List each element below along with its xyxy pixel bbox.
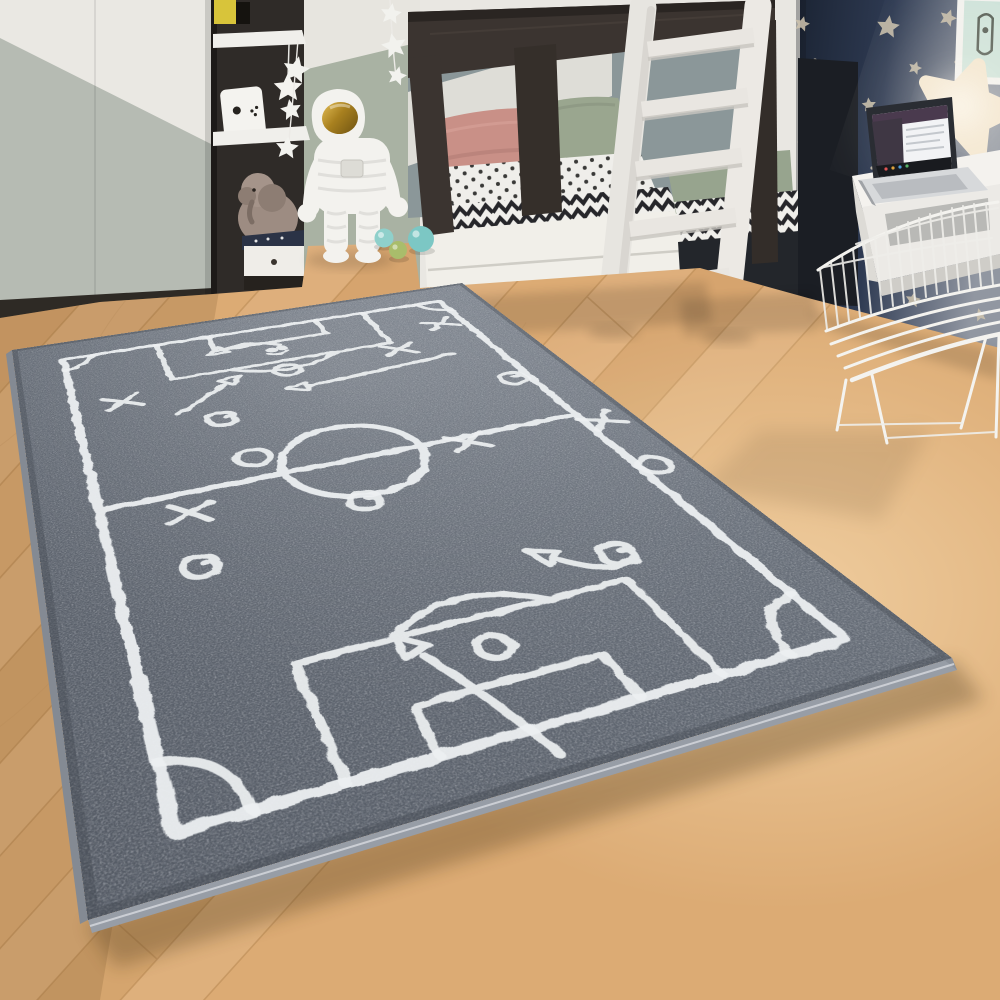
yellow-box	[214, 0, 236, 24]
wardrobe	[0, 0, 215, 330]
bed-side-panel	[798, 58, 858, 306]
drawer-box	[242, 230, 304, 290]
bedroom-photo: hello	[0, 0, 1000, 1000]
